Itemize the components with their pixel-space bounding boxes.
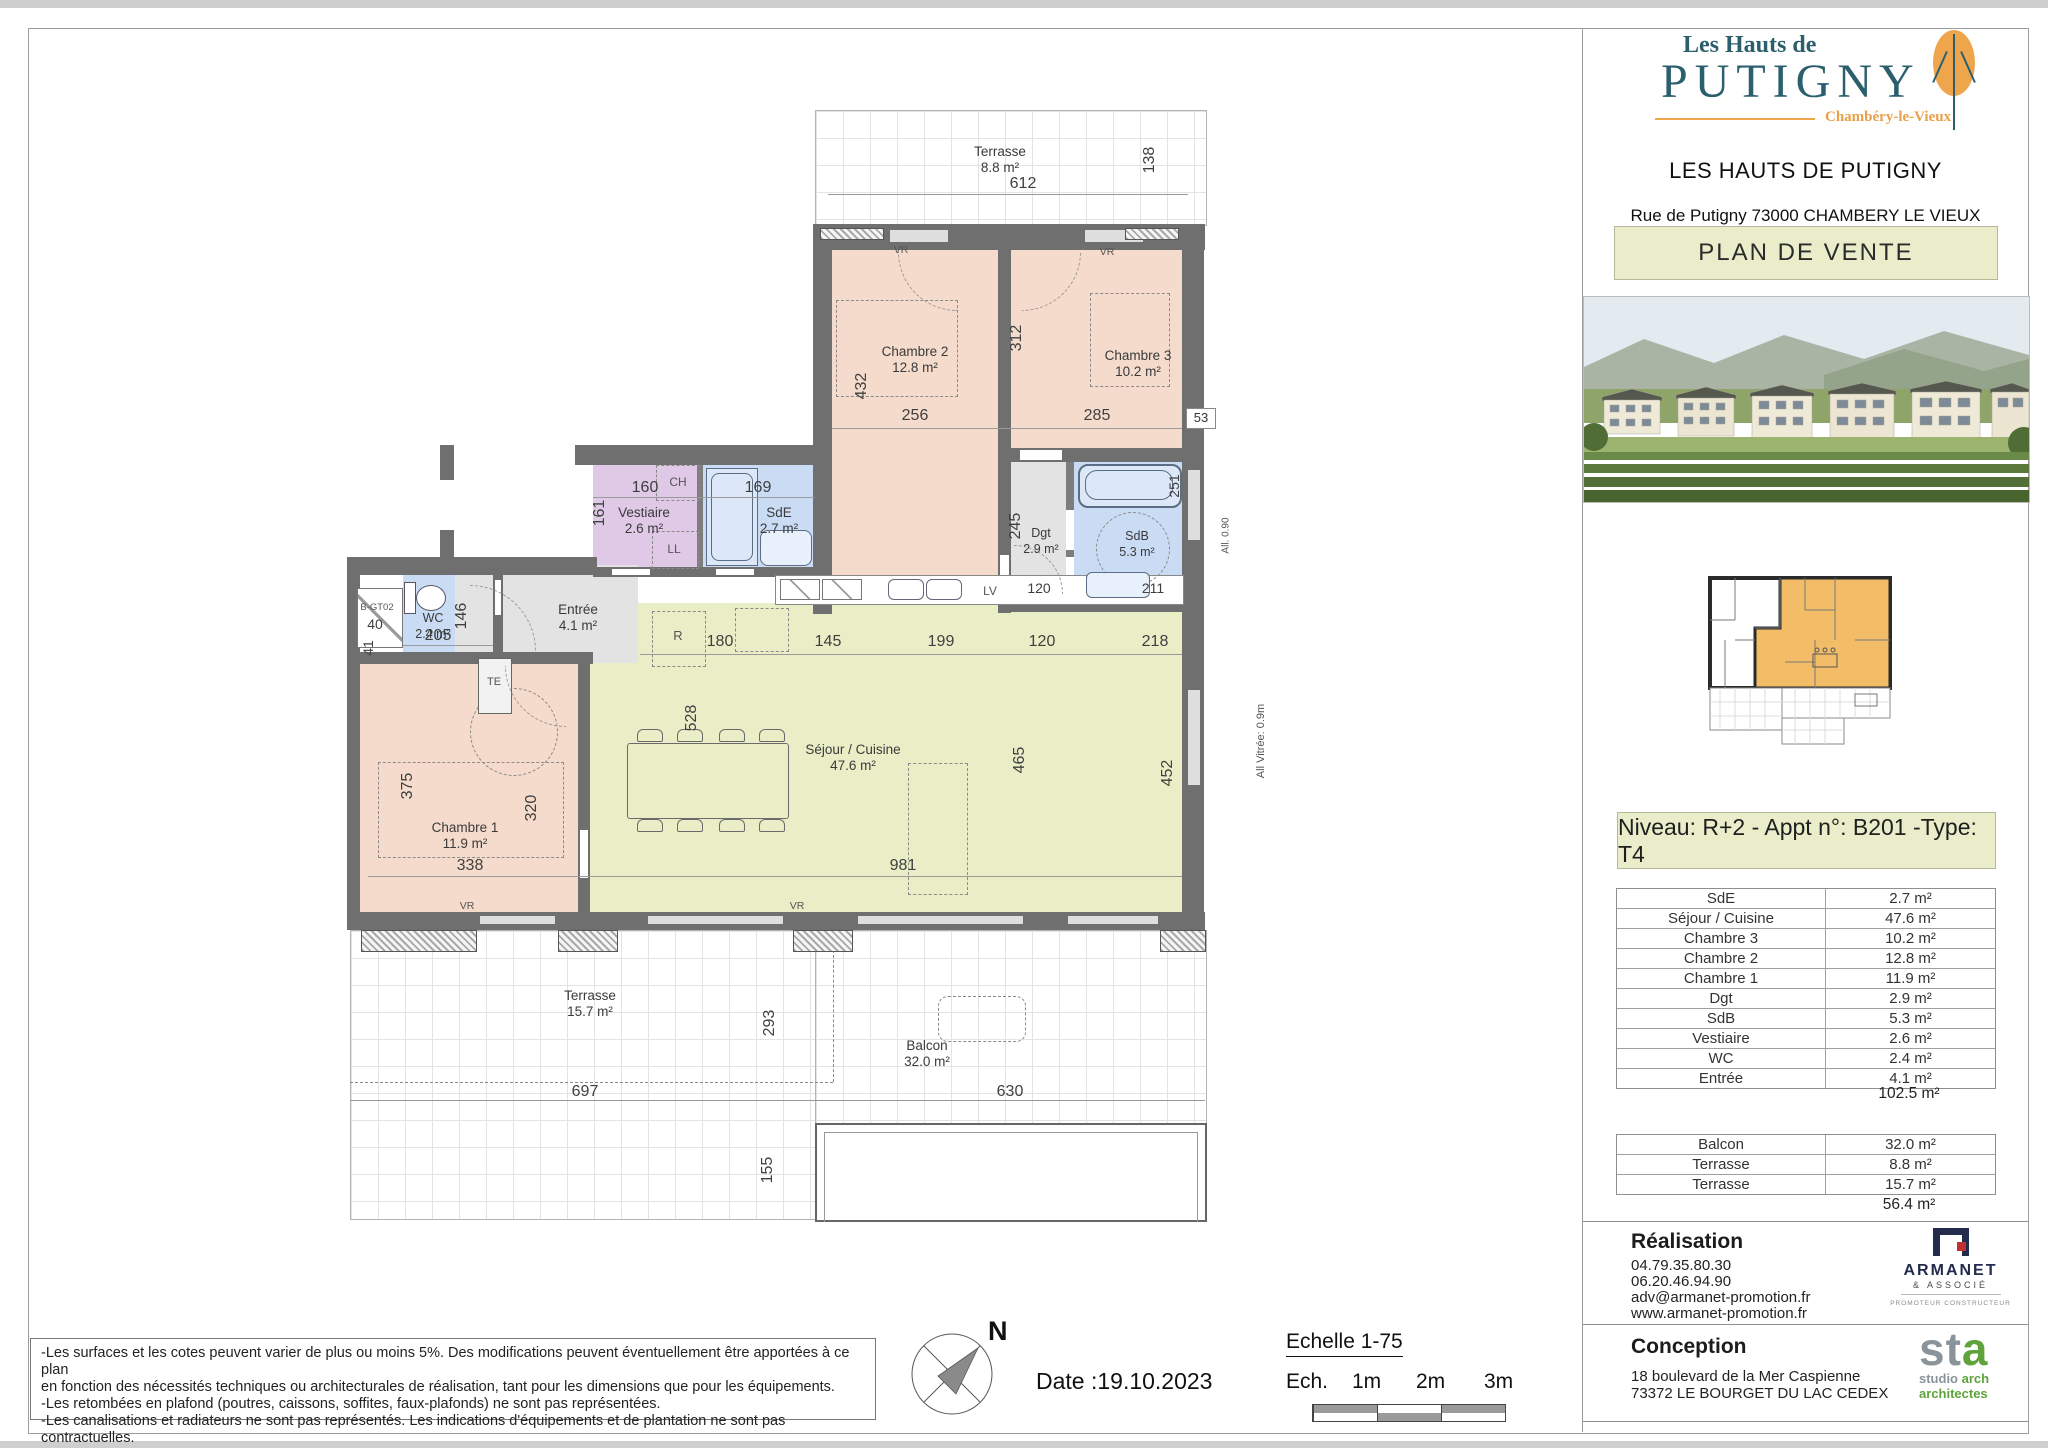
disclaimer-line: en fonction des nécessités techniques ou… <box>41 1379 865 1396</box>
pier-top-1 <box>820 228 884 240</box>
dim-630: 630 <box>965 1084 1055 1100</box>
north-label: N <box>988 1316 1008 1347</box>
dim-697: 697 <box>540 1084 630 1100</box>
wall-right <box>1182 224 1204 930</box>
brand-line2: PUTIGNY <box>1661 54 1921 109</box>
armanet-name: ARMANET <box>1883 1262 2018 1280</box>
pier-4 <box>1160 930 1206 952</box>
pier-1 <box>361 930 477 952</box>
balcony-terrace-divider-v <box>833 930 834 1082</box>
chair <box>677 819 703 832</box>
sta-arch: arch <box>1962 1371 1989 1386</box>
scale-label-ech: Ech. <box>1286 1370 1328 1394</box>
disclaimer-box: -Les surfaces et les cotes peuvent varie… <box>30 1338 876 1420</box>
dimline-256-285 <box>832 428 1182 429</box>
dimline-612 <box>828 194 1188 195</box>
toilet-bowl <box>416 585 446 611</box>
dim-338: 338 <box>435 858 505 874</box>
label-terrasse-top: Terrasse 8.8 m² <box>940 144 1060 176</box>
pier-3 <box>793 930 853 952</box>
table-row: Chambre 310.2 m² <box>1617 929 1995 949</box>
compass-icon <box>908 1330 996 1418</box>
scale-label-1m: 1m <box>1352 1370 1381 1394</box>
window-right-1 <box>1188 470 1200 540</box>
table-row: Vestiaire2.6 m² <box>1617 1029 1995 1049</box>
chair <box>719 819 745 832</box>
wall-vestiaire-top <box>575 445 815 465</box>
table-row: Dgt2.9 m² <box>1617 989 1995 1009</box>
wall-ch2-left <box>813 224 832 614</box>
window-bottom-4 <box>1068 916 1158 924</box>
dim-205: 205 <box>393 628 483 644</box>
key-plan <box>1695 570 1905 770</box>
label-sdb: SdB 5.3 m² <box>1105 528 1169 560</box>
table-row: Balcon32.0 m² <box>1617 1135 1995 1155</box>
dim-293: 293 <box>762 1001 778 1045</box>
oven <box>780 579 820 600</box>
door-vestiaire <box>612 569 650 575</box>
dim-155: 155 <box>760 1148 776 1192</box>
project-address: Rue de Putigny 73000 CHAMBERY LE VIEUX <box>1583 206 2028 226</box>
dim-53: 53 <box>1186 408 1216 429</box>
tag-ch: CH <box>664 475 692 489</box>
table-row: Terrasse8.8 m² <box>1617 1155 1995 1175</box>
tag-lv: LV <box>975 584 1005 598</box>
window-right-2 <box>1188 690 1200 785</box>
label-terrasse-bottom: Terrasse 15.7 m² <box>530 988 650 1020</box>
dim-251: 251 <box>1166 464 1182 508</box>
dim-211: 211 <box>1128 580 1178 596</box>
dim-180: 180 <box>685 634 755 650</box>
table-row: Séjour / Cuisine47.6 m² <box>1617 909 1995 929</box>
sta-logo: sta studio arch architectes <box>1919 1327 2024 1417</box>
dim-120-kitchen: 120 <box>1010 634 1074 650</box>
label-entree: Entrée 4.1 m² <box>518 602 638 634</box>
dim-612: 612 <box>988 176 1058 192</box>
tag-r: R <box>664 628 692 643</box>
dim-452: 452 <box>1160 751 1176 795</box>
plan-de-vente-banner: PLAN DE VENTE <box>1614 226 1998 280</box>
disclaimer-line: -Les retombées en plafond (poutres, cais… <box>41 1396 865 1413</box>
terrace-bottom-surface <box>350 930 817 1220</box>
chair <box>637 819 663 832</box>
dim-199: 199 <box>906 634 976 650</box>
footer-strip: -Les surfaces et les cotes peuvent varie… <box>0 1316 1582 1432</box>
armanet-sub: & ASSOCIÉ <box>1883 1280 2018 1290</box>
table-row: Chambre 212.8 m² <box>1617 949 1995 969</box>
sink-bowl <box>888 579 924 600</box>
areas-total: 102.5 m² <box>1824 1085 1994 1103</box>
tag-b-gt02: B-GT02 <box>350 602 404 613</box>
conception-heading: Conception <box>1631 1335 1747 1359</box>
dim-161: 161 <box>592 491 608 535</box>
dim-432: 432 <box>854 364 870 408</box>
window-bottom-2 <box>648 916 783 924</box>
tag-vr: VR <box>1092 246 1122 258</box>
tag-vr: VR <box>452 900 482 912</box>
realisation-phone-2: 06.20.46.94.90 <box>1631 1274 1731 1290</box>
table-row: Terrasse15.7 m² <box>1617 1175 1995 1194</box>
sidebar: Les Hauts de PUTIGNY Chambéry-le-Vieux L… <box>1583 28 2028 1432</box>
label-sde: SdE 2.7 m² <box>719 505 839 537</box>
tag-ll: LL <box>660 542 688 556</box>
realisation-section: Réalisation 04.79.35.80.30 06.20.46.94.9… <box>1583 1221 2028 1325</box>
dim-320: 320 <box>524 786 540 830</box>
date-label: Date :19.10.2023 <box>1036 1368 1212 1395</box>
tag-all-090: All. 0.90 <box>1221 506 1232 566</box>
armanet-tagline: PROMOTEUR CONSTRUCTEUR <box>1883 1300 2018 1307</box>
dim-40: 40 <box>358 616 392 632</box>
balcony-table <box>938 996 1026 1042</box>
dim-138: 138 <box>1142 140 1158 180</box>
dim-528: 528 <box>684 696 700 740</box>
dimline-kitchen <box>640 654 1182 655</box>
dim-256: 256 <box>880 408 950 424</box>
scale-block: Echelle 1-75 Ech. 1m 2m 3m <box>1286 1330 1526 1426</box>
unit-banner: Niveau: R+2 - Appt n°: B201 -Type: T4 <box>1617 812 1996 869</box>
tag-vr: VR <box>782 900 812 912</box>
dim-120-dgt: 120 <box>1016 580 1062 596</box>
dim-218: 218 <box>1120 634 1190 650</box>
dining-table <box>627 743 789 819</box>
disclaimer-line: -Les surfaces et les cotes peuvent varie… <box>41 1345 865 1379</box>
realisation-website: www.armanet-promotion.fr <box>1631 1306 1807 1322</box>
floor-plan: Terrasse 8.8 m² Chambre 2 12.8 m² Chambr… <box>0 0 1582 1330</box>
door-sde <box>716 569 754 575</box>
exterior-total: 56.4 m² <box>1824 1196 1994 1214</box>
conception-address-2: 73372 LE BOURGET DU LAC CEDEX <box>1631 1386 1888 1402</box>
dimline-160-169 <box>593 497 815 498</box>
realisation-phone-1: 04.79.35.80.30 <box>1631 1258 1731 1274</box>
dim-981: 981 <box>868 858 938 874</box>
tag-te: TE <box>480 676 508 688</box>
brand-subtitle: Chambéry-le-Vieux <box>1825 109 1951 126</box>
label-balcon: Balcon 32.0 m² <box>867 1038 987 1070</box>
plan-de-vente-sheet: { "colors":{"banner_green":"#e9edc9","ro… <box>0 0 2048 1448</box>
dim-245: 245 <box>1008 504 1024 548</box>
scale-label-3m: 3m <box>1484 1370 1513 1394</box>
disclaimer-line: -Les canalisations et radiateurs ne sont… <box>41 1413 865 1447</box>
label-sejour: Séjour / Cuisine 47.6 m² <box>783 742 923 774</box>
label-chambre1: Chambre 1 11.9 m² <box>405 820 525 852</box>
door-entrance <box>440 480 454 530</box>
dim-145: 145 <box>793 634 863 650</box>
scale-title: Echelle 1-75 <box>1286 1330 1403 1357</box>
window-ch2 <box>890 230 948 242</box>
chair <box>759 729 785 742</box>
dim-285: 285 <box>1062 408 1132 424</box>
table-row: Chambre 111.9 m² <box>1617 969 1995 989</box>
conception-section: Conception 18 boulevard de la Mer Caspie… <box>1583 1324 2028 1422</box>
oven <box>822 579 862 600</box>
scale-label-2m: 2m <box>1416 1370 1445 1394</box>
tag-vr: VR <box>886 244 916 256</box>
door-chambre3 <box>1020 450 1062 460</box>
project-photo <box>1583 296 2030 503</box>
label-chambre3: Chambre 3 10.2 m² <box>1078 348 1198 380</box>
dim-375: 375 <box>400 764 416 808</box>
pier-top-2 <box>1125 228 1179 240</box>
wall-ch1-top <box>347 652 593 664</box>
brand-logo: Les Hauts de PUTIGNY Chambéry-le-Vieux <box>1643 28 1973 153</box>
chair <box>637 729 663 742</box>
wall-wc-top <box>347 557 597 575</box>
armanet-logo: ARMANET & ASSOCIÉ PROMOTEUR CONSTRUCTEUR <box>1883 1228 2018 1320</box>
door-chambre1 <box>580 830 588 878</box>
table-row: SdE2.7 m² <box>1617 889 1995 909</box>
label-chambre2: Chambre 2 12.8 m² <box>855 344 975 376</box>
armanet-arch-icon <box>1933 1228 1969 1258</box>
chair <box>759 819 785 832</box>
table-row: SdB5.3 m² <box>1617 1009 1995 1029</box>
table-row: WC2.4 m² <box>1617 1049 1995 1069</box>
scale-bar <box>1312 1404 1506 1422</box>
chair <box>719 729 745 742</box>
pier-2 <box>558 930 618 952</box>
sta-studio: studio <box>1919 1371 1962 1386</box>
dim-312: 312 <box>1009 316 1025 360</box>
exterior-table: Balcon32.0 m² Terrasse8.8 m² Terrasse15.… <box>1616 1134 1996 1195</box>
dimline-205 <box>403 645 493 646</box>
sink-bowl <box>926 579 962 600</box>
tag-all-vitree: All Vitrée: 0.9m <box>1255 686 1267 796</box>
sta-big-green: a <box>1962 1323 1989 1375</box>
areas-table: SdE2.7 m² Séjour / Cuisine47.6 m² Chambr… <box>1616 888 1996 1089</box>
window-bottom-1 <box>480 916 555 924</box>
window-bottom-3 <box>858 916 1023 924</box>
sta-architectes: architectes <box>1919 1386 2024 1401</box>
dimline-697-630 <box>350 1100 1205 1101</box>
realisation-email: adv@armanet-promotion.fr <box>1631 1290 1810 1306</box>
dim-169: 169 <box>723 480 793 496</box>
sta-big-gray: st <box>1919 1323 1962 1375</box>
project-title: LES HAUTS DE PUTIGNY <box>1583 158 2028 184</box>
logo-rule <box>1655 118 1815 120</box>
lower-structure <box>815 1123 1207 1222</box>
conception-address-1: 18 boulevard de la Mer Caspienne <box>1631 1369 1860 1385</box>
realisation-heading: Réalisation <box>1631 1230 1743 1254</box>
dimline-338-981 <box>368 876 1182 877</box>
dim-465: 465 <box>1012 738 1028 782</box>
dim-41: 41 <box>360 628 376 668</box>
